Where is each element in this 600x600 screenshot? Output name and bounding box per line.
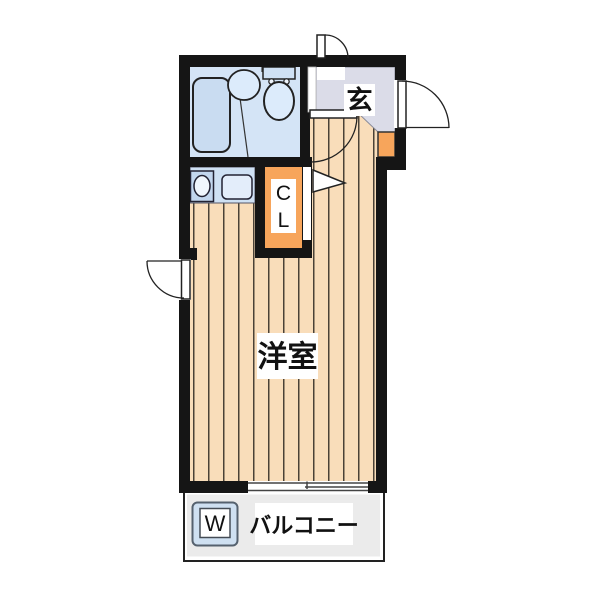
washbasin-sink	[228, 70, 260, 100]
front-door-arc	[402, 81, 449, 128]
washing-machine-label: W	[205, 511, 226, 536]
floorplan-canvas: W バルコニー	[0, 0, 600, 600]
floorplan-svg: W バルコニー	[0, 0, 600, 600]
closet-block: C L	[255, 157, 312, 258]
top-door-arc	[325, 35, 348, 58]
left-door-leaf	[182, 260, 191, 299]
kitchen-sink-bowl	[194, 176, 210, 197]
balcony-label: バルコニー	[249, 513, 359, 538]
closet-label-l: L	[278, 209, 290, 232]
closet-door-opening	[303, 167, 311, 240]
wall-top	[179, 55, 406, 67]
bathroom-door-opening	[308, 67, 316, 112]
toilet-bowl	[264, 82, 294, 120]
entrance-step	[378, 132, 395, 157]
wall-left-lower	[179, 299, 190, 493]
bathtub	[193, 78, 230, 152]
wall-left-pillar	[179, 248, 197, 260]
kitchen-area	[190, 167, 255, 203]
balcony-area: W バルコニー	[184, 492, 384, 561]
main-room-label: 洋室	[258, 340, 318, 374]
entrance-threshold	[317, 67, 345, 80]
balcony-window	[248, 481, 368, 493]
wall-right	[376, 157, 387, 493]
toilet-tank	[263, 67, 295, 79]
front-door-leaf	[398, 81, 406, 128]
closet-label-c: C	[276, 182, 291, 205]
bathroom-area	[190, 67, 300, 157]
top-door-leaf	[317, 35, 325, 58]
kitchen-stove	[222, 175, 252, 199]
entrance-label: 玄	[346, 85, 372, 115]
